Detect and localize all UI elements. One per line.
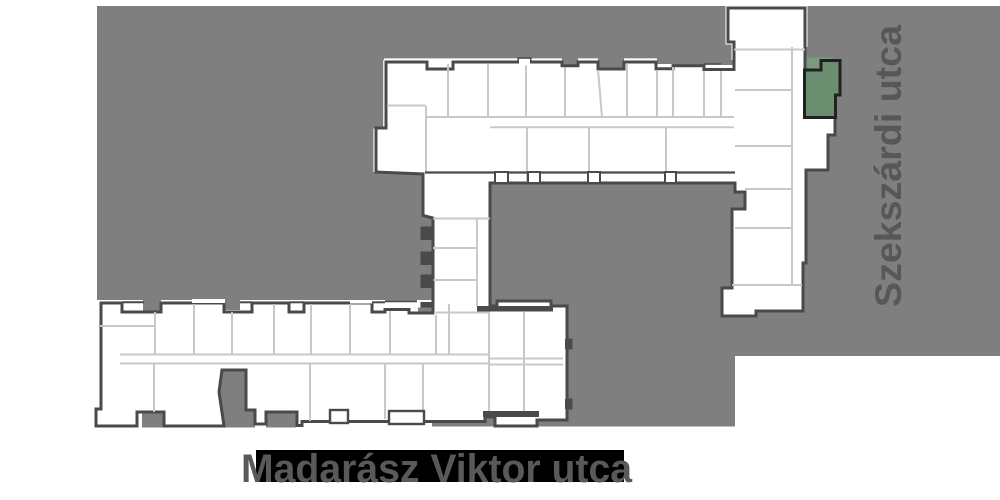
svg-text:Szekszárdi utca: Szekszárdi utca bbox=[868, 25, 909, 307]
svg-text:Madarász Viktor utca: Madarász Viktor utca bbox=[241, 447, 633, 491]
